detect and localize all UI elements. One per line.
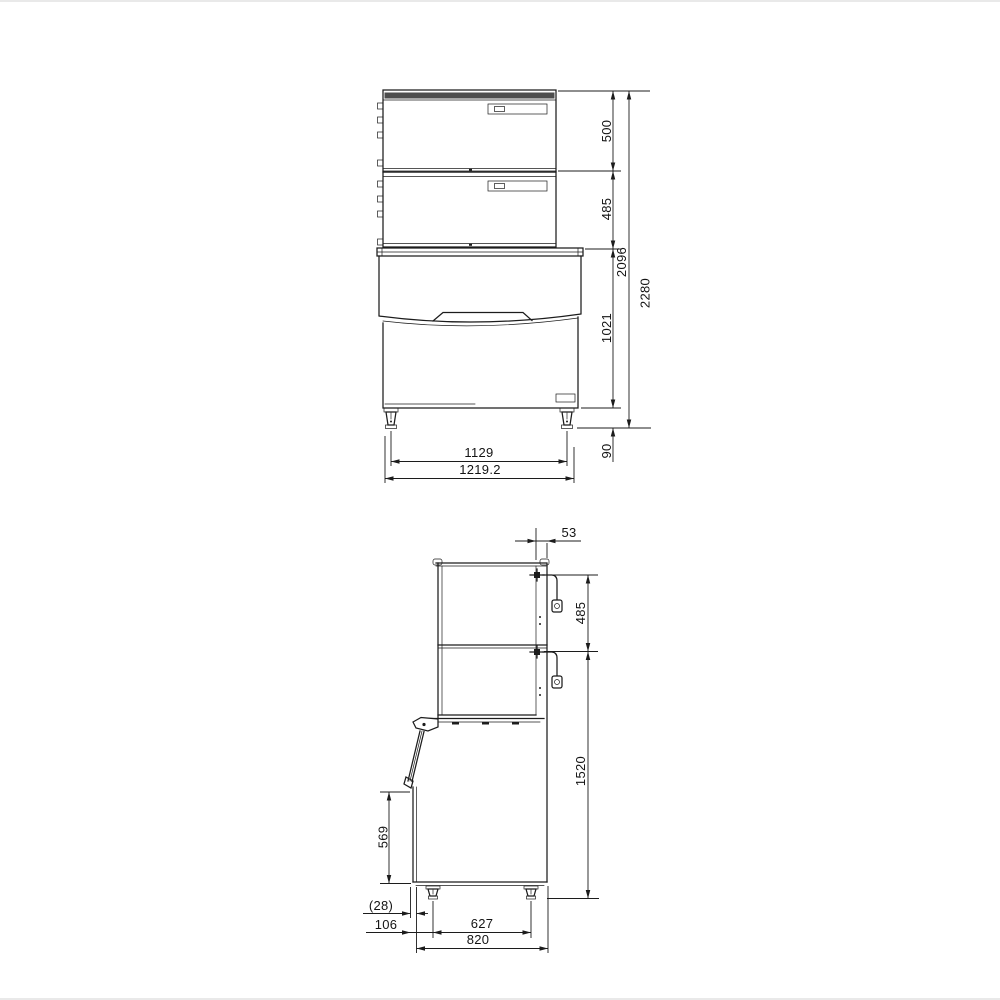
dim-label-door-opening: 569 [375, 826, 390, 849]
front-extension-lines [385, 91, 651, 483]
bin-body [383, 317, 578, 408]
bin-legs-front [384, 408, 574, 429]
left-hinge-tabs [378, 181, 384, 245]
side-door-dimension: 569 [375, 792, 390, 884]
louver-band [385, 93, 555, 99]
bin-top-tab [482, 722, 489, 725]
front-view: 500 485 1021 90 2096 2280 1129 1219.2 [377, 90, 652, 483]
dim-label-connector-spacing: 485 [573, 602, 588, 625]
leg-right [560, 408, 574, 429]
side-top-dimension: 53 [515, 525, 581, 541]
top-corner-cap-back [540, 559, 549, 565]
ice-maker-unit-mid-front [378, 172, 557, 247]
left-hinge-tabs [378, 103, 384, 166]
bin-legs-side [426, 886, 538, 899]
leg-front [426, 886, 440, 899]
control-panel-plate [488, 104, 547, 114]
side-bottom-dimensions: (28) 106 627 820 [363, 898, 548, 949]
hinge-pivot [422, 723, 425, 726]
lower-connection [530, 646, 562, 696]
dim-label-overall-height: 2280 [637, 278, 652, 308]
technical-drawing: 500 485 1021 90 2096 2280 1129 1219.2 [0, 0, 1000, 1000]
dim-label-door-offset: (28) [369, 898, 393, 913]
bin-top-tab [452, 722, 459, 725]
ice-maker-units-side [433, 559, 562, 882]
dim-label-front-to-leg: 106 [375, 917, 398, 932]
control-panel-plate [488, 181, 547, 191]
side-vertical-dimensions: 485 1520 [573, 575, 588, 899]
front-horizontal-dimensions: 1129 1219.2 [385, 445, 574, 479]
bin-top-tab [512, 722, 519, 725]
dim-label-leg-height: 90 [599, 443, 614, 458]
leg-back [524, 886, 538, 899]
connection-plug [552, 600, 562, 612]
dim-label-bin-height: 1021 [599, 313, 614, 343]
dim-label-overall-depth: 820 [467, 932, 490, 947]
side-view: 53 485 1520 569 (28) 106 627 820 [363, 525, 599, 953]
side-extension-lines [380, 528, 599, 953]
dim-label-overall-width: 1219.2 [459, 462, 501, 477]
dim-label-leg-span: 1129 [464, 445, 493, 460]
bin-door-handle [433, 313, 532, 322]
door-bottom-edge [404, 777, 413, 788]
dim-label-mid-unit-height: 485 [599, 198, 614, 221]
connection-cord [543, 652, 557, 676]
leg-left [384, 408, 398, 429]
rating-label [556, 394, 575, 402]
joint-tick [469, 169, 472, 171]
bin-door-open [404, 718, 438, 789]
connection-cord [543, 575, 557, 600]
ice-maker-unit-top-front [378, 90, 557, 172]
front-vertical-dimensions: 500 485 1021 90 2096 2280 [599, 91, 653, 462]
dim-label-stack-height: 2096 [614, 247, 629, 277]
dim-label-back-clearance: 53 [561, 525, 576, 540]
dim-label-connector-height: 1520 [573, 756, 588, 786]
storage-bin-side [404, 718, 547, 886]
dim-label-side-leg-span: 627 [471, 916, 494, 931]
joint-tick [469, 244, 472, 246]
connection-plug [552, 676, 562, 688]
upper-connection [530, 569, 562, 625]
storage-bin-front [377, 248, 583, 408]
indicator-window [495, 107, 505, 112]
indicator-window [495, 184, 505, 189]
dim-label-top-unit-height: 500 [599, 120, 614, 143]
